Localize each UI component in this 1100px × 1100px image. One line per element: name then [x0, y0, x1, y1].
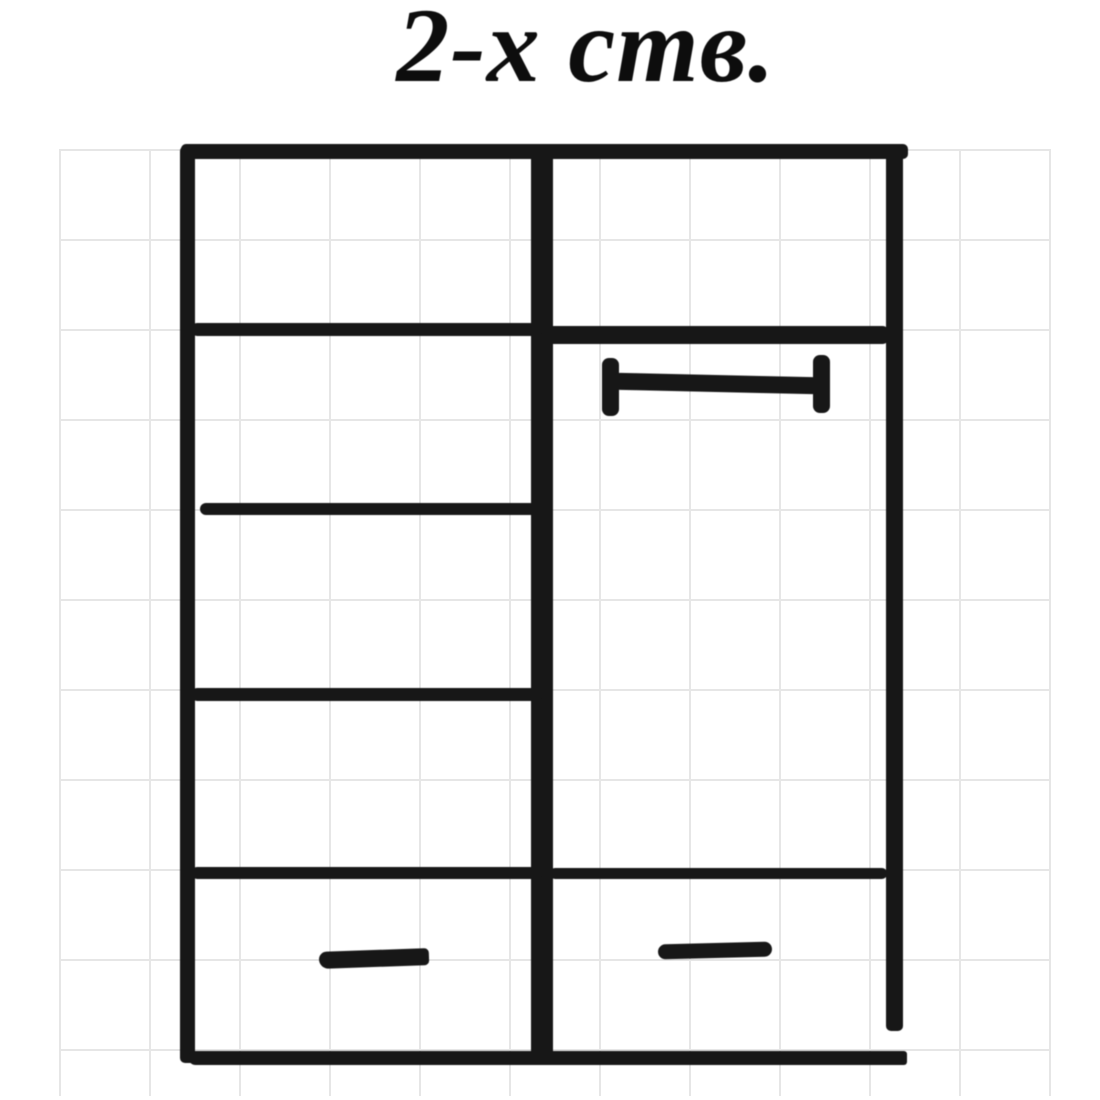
- right-drawer-handle-icon: [658, 942, 772, 960]
- right-drawer-top-line: [550, 868, 887, 879]
- center-divider: [531, 145, 553, 1063]
- door-handle-bar: [612, 373, 820, 395]
- shelf-line-2: [200, 503, 542, 515]
- wardrobe-sketch-image: 2-х ств.: [0, 0, 1100, 1100]
- shelf-line-3: [192, 688, 542, 701]
- door-handle-icon: [602, 355, 830, 417]
- cabinet-frame-right: [886, 145, 903, 1031]
- left-drawer-top-line: [192, 867, 542, 879]
- wardrobe-figure: [0, 0, 1100, 1100]
- cabinet-frame-left: [180, 146, 195, 1063]
- right-door-top-line: [542, 326, 888, 344]
- left-drawer-handle-icon: [319, 948, 430, 969]
- shelf-line-1: [192, 323, 542, 336]
